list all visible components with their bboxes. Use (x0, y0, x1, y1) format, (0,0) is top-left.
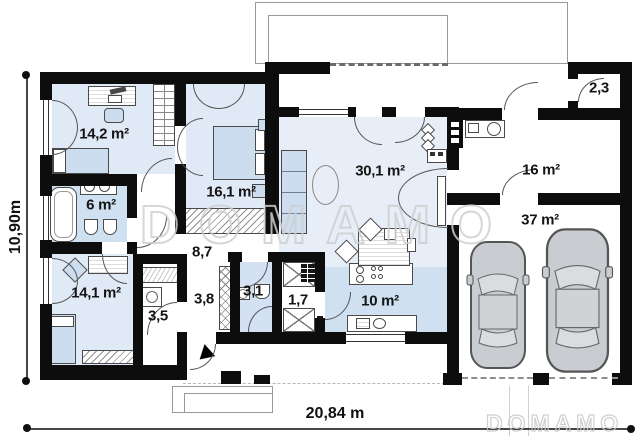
dimension-line-vertical (26, 75, 28, 382)
garage-door-dashed (462, 377, 533, 379)
porch-pillar (221, 371, 241, 384)
island-sink (356, 275, 364, 283)
stove-burner (378, 274, 383, 279)
wall (40, 365, 183, 380)
wardrobe (183, 208, 267, 234)
dimension-dot (23, 424, 31, 432)
rug (312, 165, 339, 205)
wall (40, 72, 277, 84)
terrace-outline-inner (268, 15, 448, 64)
wall (315, 262, 325, 292)
stove-burner (371, 266, 376, 271)
sofa (281, 150, 307, 234)
car (541, 226, 614, 375)
kitchen-sink (356, 318, 370, 329)
car (466, 238, 530, 372)
shoe-rack-icon (301, 264, 315, 282)
wall (230, 262, 240, 332)
wardrobe (82, 350, 136, 364)
window (298, 109, 348, 115)
door-arc (137, 216, 167, 248)
door-arc (504, 82, 538, 110)
door-arc (190, 344, 216, 370)
washing-machine-drum (146, 291, 158, 303)
wall (177, 332, 187, 380)
room-label-bathroom-1: 6 m² (86, 198, 116, 213)
wall (228, 252, 242, 262)
wall (538, 108, 632, 120)
room-label-bathroom-2: 3,1 (243, 284, 263, 299)
room-label-pantry: 1,7 (288, 293, 308, 308)
wall (382, 107, 396, 117)
dimension-dot (22, 377, 30, 385)
room-label-laundry: 3,5 (148, 309, 168, 324)
room-label-garage: 37 m² (521, 213, 559, 228)
wall (133, 254, 187, 264)
room-label-bedroom-1: 14,2 m² (79, 127, 129, 142)
computer-icon (108, 95, 122, 103)
wall (568, 74, 578, 79)
wall (177, 264, 187, 302)
wall (620, 62, 632, 385)
fireplace-insert (438, 152, 443, 156)
bed-pillow (255, 129, 265, 151)
wall (127, 242, 137, 254)
wall (40, 174, 137, 186)
island-sink (356, 266, 364, 274)
window (43, 196, 49, 240)
dimension-label-height: 10,90m (7, 185, 25, 269)
floor-plan: 14,2 m² 16,1 m² 6 m² 8,7 30,1 m² 2,3 16 … (0, 0, 640, 441)
boiler-vent (451, 138, 459, 143)
dimension-dot (22, 71, 30, 79)
boiler-panel (468, 123, 479, 133)
room-label-kitchen: 10 m² (361, 294, 399, 309)
bed-pillow (50, 316, 74, 327)
wall (568, 101, 578, 108)
kitchen-basin (373, 318, 386, 329)
garage-door-dashed (549, 377, 618, 379)
wall (279, 107, 299, 117)
room-label-corridor: 8,7 (192, 245, 212, 260)
dining-chair (407, 238, 416, 252)
wall (40, 242, 102, 254)
room-label-vestibule: 2,3 (589, 81, 609, 96)
wall (272, 262, 282, 332)
wall (127, 174, 137, 218)
room-label-bedroom-2: 16,1 m² (206, 185, 256, 200)
desk-chair (104, 108, 124, 123)
room-label-storage: 16 m² (522, 163, 560, 178)
toilet (84, 219, 98, 235)
wall (175, 164, 186, 234)
wall (447, 193, 500, 205)
dimension-line-horizontal (27, 428, 631, 430)
placemat (384, 228, 396, 240)
wall (447, 225, 459, 375)
window (43, 100, 49, 155)
bidet (103, 219, 117, 235)
closet-shelving (153, 84, 175, 146)
wardrobe (283, 308, 315, 332)
wall (216, 332, 346, 344)
wall (348, 107, 356, 117)
coat-rack (142, 267, 178, 283)
room-label-bedroom-3: 14,1 m² (71, 286, 121, 301)
dimension-dot (627, 425, 635, 433)
room-label-living-room: 30,1 m² (355, 164, 405, 179)
entrance-steps-inner (184, 393, 273, 413)
wall (612, 373, 632, 385)
boiler-vent (451, 122, 459, 127)
boiler-vent (451, 130, 459, 135)
wall (443, 373, 462, 385)
watermark: DOMAMO (486, 410, 623, 437)
wall (533, 373, 549, 385)
window (346, 334, 405, 342)
bathtub-inner (54, 191, 73, 238)
porch-pillar (254, 375, 270, 384)
dimension-label-width: 20,84 m (270, 405, 400, 423)
stove-burner (378, 266, 383, 271)
wall (538, 193, 632, 205)
wall (315, 318, 325, 332)
terrace-dashed-edge (330, 63, 448, 66)
wall (175, 84, 186, 126)
wall (133, 254, 143, 365)
stove-burner (371, 274, 376, 279)
wall (268, 252, 325, 262)
room-label-hall: 3,8 (194, 292, 214, 307)
wall (40, 72, 52, 100)
window (43, 258, 49, 304)
wall (265, 62, 330, 74)
boiler-dial (487, 122, 501, 136)
bed-pillow (255, 153, 265, 175)
fireplace-insert (430, 152, 435, 156)
wall (405, 332, 459, 344)
wall (265, 62, 279, 234)
